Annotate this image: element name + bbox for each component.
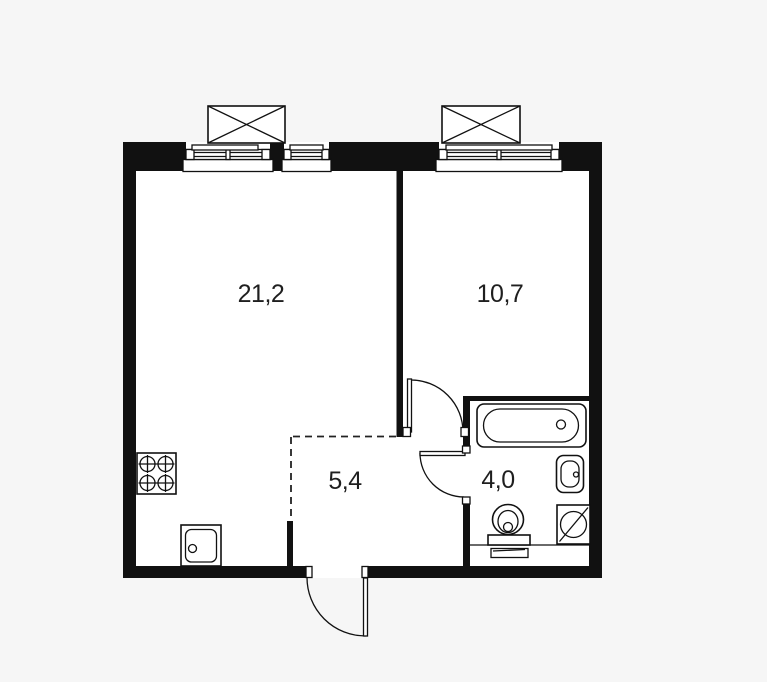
apartment-outline — [123, 142, 602, 578]
window-end-block — [439, 150, 447, 160]
window-mullion — [497, 150, 501, 160]
window-sill — [183, 160, 273, 172]
door-jamb — [461, 428, 469, 437]
room-area-label-living: 21,2 — [238, 280, 285, 308]
floor-plan-canvas: 21,2 10,7 5,4 4,0 — [0, 0, 767, 682]
room-area-label-hallway: 5,4 — [328, 467, 362, 495]
wall-bathroom-left-lower — [463, 504, 470, 566]
window-outer-pane — [446, 145, 552, 150]
window-end-block — [284, 150, 291, 160]
door-jamb — [362, 567, 368, 578]
wall-right — [589, 171, 602, 578]
wall-top-left — [123, 142, 186, 171]
window-outer-pane — [290, 145, 323, 150]
wall-bathroom-top — [463, 396, 589, 401]
wall-top-middle — [329, 142, 439, 171]
door-swing-icon — [307, 578, 366, 637]
wall-bathroom-left-upper — [463, 401, 470, 446]
window-sill — [436, 160, 562, 172]
window-end-block — [551, 150, 559, 160]
door-leaf — [408, 379, 412, 432]
door-jamb — [463, 446, 471, 453]
window-end-block — [322, 150, 329, 160]
wash-basin — [557, 456, 584, 493]
window-end-block — [262, 150, 270, 160]
window-opening-box-right — [442, 106, 520, 143]
door-jamb — [463, 497, 471, 504]
wall-left — [123, 171, 136, 578]
stove-icon — [137, 453, 176, 494]
door-jamb — [403, 428, 411, 437]
wall-top-right — [559, 142, 602, 171]
vent-duct — [491, 549, 528, 558]
floor-plan: 21,2 10,7 5,4 4,0 — [0, 0, 767, 682]
stove — [137, 453, 176, 494]
kitchen-sink — [181, 525, 221, 566]
room-area-label-bedroom: 10,7 — [477, 280, 524, 308]
washing-machine — [557, 505, 590, 544]
window-mullion — [226, 150, 230, 160]
wall-bottom-left — [123, 566, 306, 578]
window-right — [436, 145, 562, 172]
bathtub — [477, 404, 586, 447]
window-small — [282, 145, 331, 172]
toilet-tank — [488, 535, 530, 545]
door-leaf — [420, 452, 465, 456]
window-sill — [282, 160, 331, 172]
toilet-icon — [493, 505, 524, 535]
room-area-label-bathroom: 4,0 — [481, 466, 514, 494]
window-end-block — [186, 150, 194, 160]
wall-partition-rooms — [397, 171, 404, 437]
wall-bottom-right — [368, 566, 602, 578]
window-opening-box-left — [208, 106, 285, 143]
door-jamb — [306, 567, 312, 578]
door-leaf — [364, 578, 368, 636]
window-left — [183, 145, 273, 172]
wall-stub-entry — [287, 521, 293, 566]
window-outer-pane — [192, 145, 258, 150]
